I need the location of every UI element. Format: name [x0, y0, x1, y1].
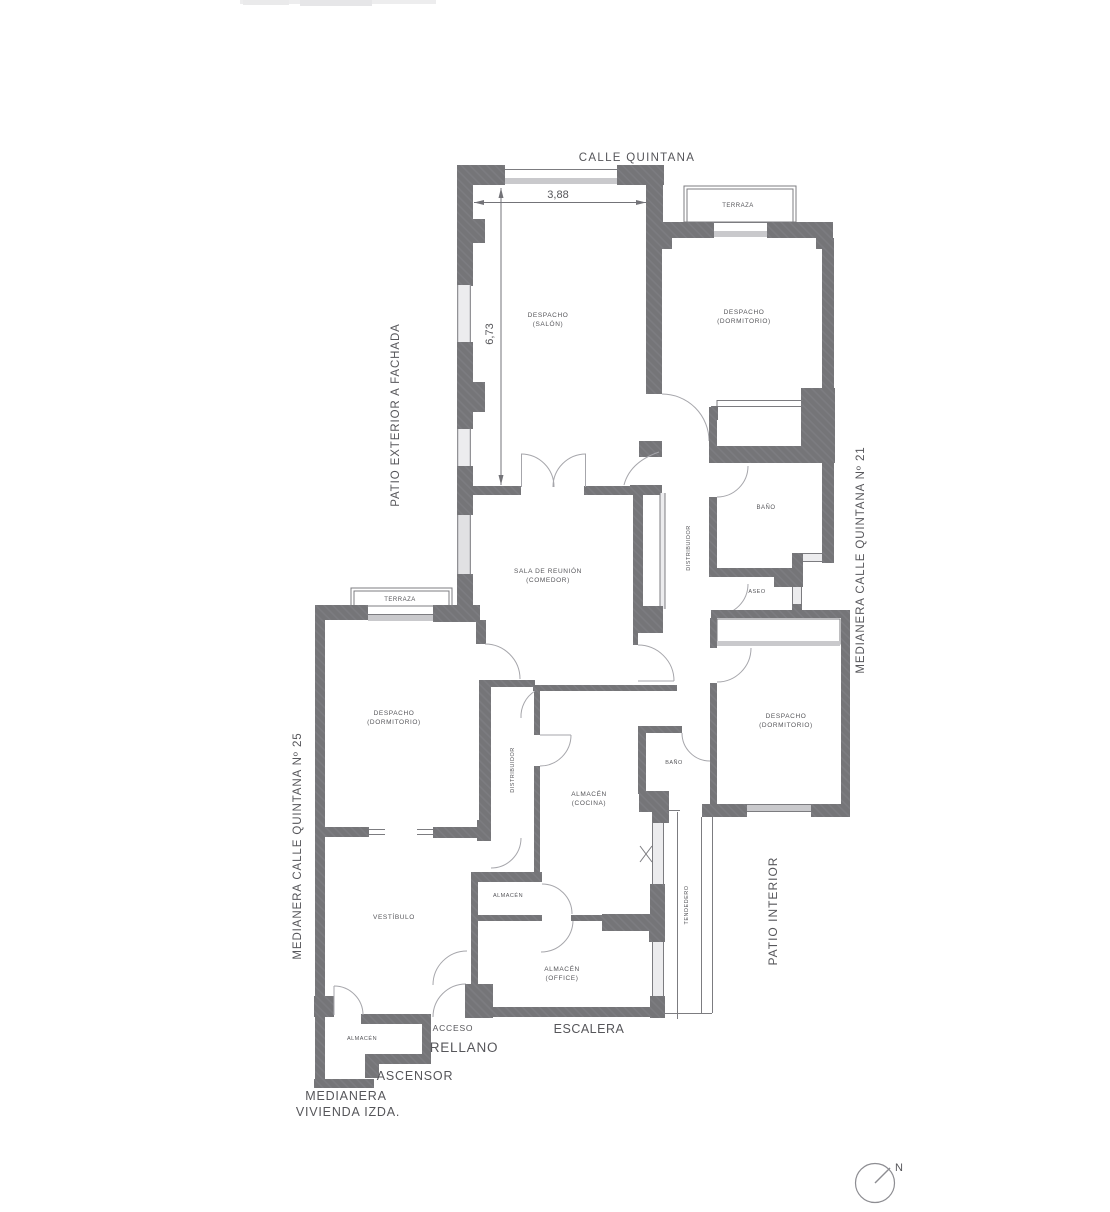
svg-text:BAÑO: BAÑO [665, 759, 683, 766]
svg-text:6,73: 6,73 [484, 323, 496, 344]
svg-text:TERRAZA: TERRAZA [722, 203, 754, 209]
svg-text:ESCALERA: ESCALERA [554, 1022, 625, 1036]
svg-text:VIVIENDA IZDA.: VIVIENDA IZDA. [296, 1105, 400, 1119]
svg-text:ASEO: ASEO [748, 589, 766, 595]
svg-text:(COCINA): (COCINA) [572, 800, 606, 807]
svg-text:(SALÓN): (SALÓN) [533, 319, 564, 328]
svg-text:BAÑO: BAÑO [756, 504, 775, 511]
svg-text:PATIO INTERIOR: PATIO INTERIOR [766, 857, 780, 966]
svg-text:DESPACHO: DESPACHO [374, 710, 415, 717]
svg-text:CALLE QUINTANA: CALLE QUINTANA [579, 152, 695, 164]
svg-text:(DORMITORIO): (DORMITORIO) [367, 719, 421, 726]
svg-text:(DORMITORIO): (DORMITORIO) [759, 722, 813, 729]
svg-text:VESTÍBULO: VESTÍBULO [373, 912, 415, 921]
svg-text:ALMACÉN: ALMACÉN [544, 964, 580, 973]
svg-text:ACCESO: ACCESO [433, 1023, 474, 1033]
svg-text:3,88: 3,88 [547, 189, 568, 201]
svg-text:ALMACÉN: ALMACÉN [493, 892, 523, 899]
svg-text:(COMEDOR): (COMEDOR) [526, 577, 570, 584]
svg-text:RELLANO: RELLANO [430, 1040, 499, 1055]
svg-text:N: N [895, 1162, 903, 1174]
svg-text:DESPACHO: DESPACHO [724, 309, 765, 316]
svg-text:ALMACÉN: ALMACÉN [571, 789, 607, 798]
svg-text:(OFFICE): (OFFICE) [546, 975, 579, 982]
svg-text:DISTRIBUIDOR: DISTRIBUIDOR [686, 525, 692, 570]
svg-text:TENDEDERO: TENDEDERO [684, 885, 690, 924]
svg-text:MEDIANERA: MEDIANERA [305, 1089, 387, 1103]
svg-text:SALA DE REUNIÓN: SALA DE REUNIÓN [514, 566, 582, 575]
svg-text:TERRAZA: TERRAZA [384, 597, 416, 603]
svg-text:DESPACHO: DESPACHO [766, 713, 807, 720]
svg-text:DISTRIBUIDOR: DISTRIBUIDOR [510, 747, 516, 792]
svg-text:MEDIANERA CALLE QUINTANA Nº 25: MEDIANERA CALLE QUINTANA Nº 25 [292, 732, 304, 959]
svg-text:ALMACÉN: ALMACÉN [347, 1035, 377, 1042]
svg-text:MEDIANERA CALLE QUINTANA Nº 21: MEDIANERA CALLE QUINTANA Nº 21 [855, 446, 867, 673]
svg-text:ASCENSOR: ASCENSOR [377, 1069, 454, 1083]
svg-text:(DORMITORIO): (DORMITORIO) [717, 318, 771, 325]
svg-text:PATIO EXTERIOR A FACHADA: PATIO EXTERIOR A FACHADA [390, 323, 402, 507]
svg-text:DESPACHO: DESPACHO [528, 312, 569, 319]
